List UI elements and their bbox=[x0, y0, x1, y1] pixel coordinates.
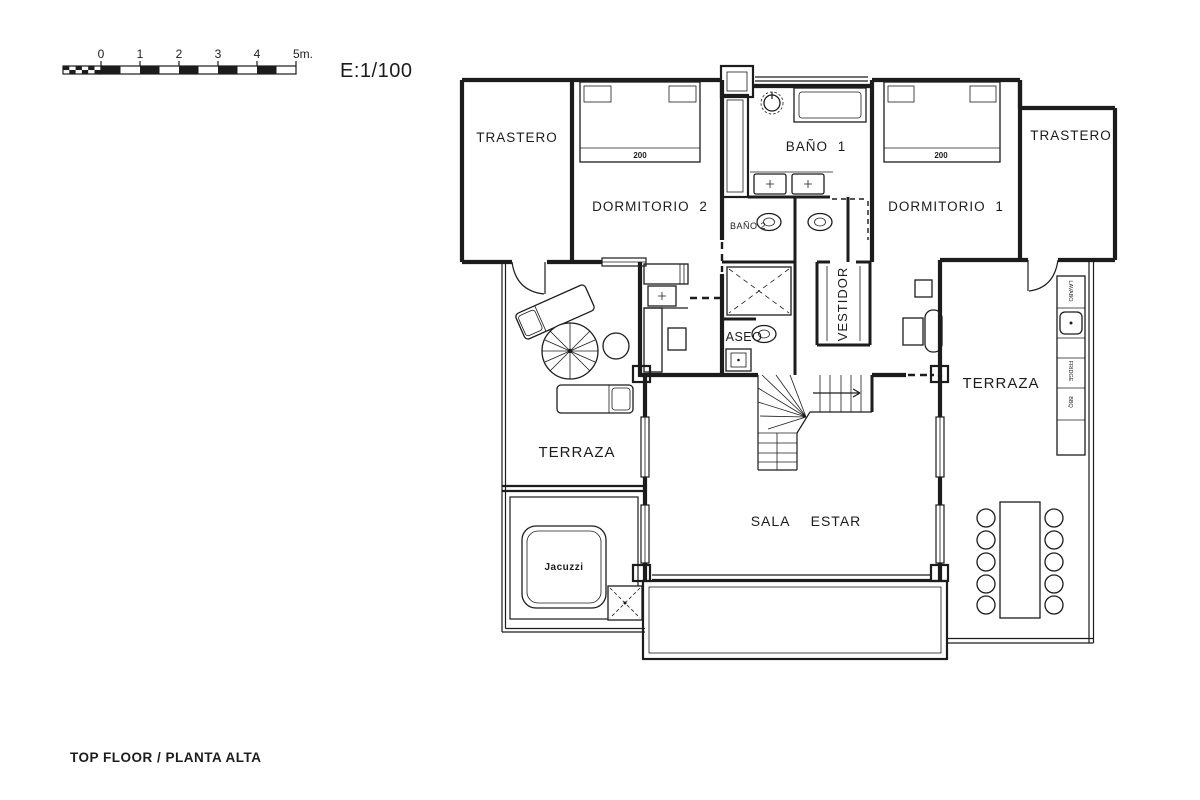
nightstand bbox=[915, 280, 932, 297]
dining-table bbox=[1000, 502, 1040, 618]
bed-dormitorio-2: 200 bbox=[580, 82, 700, 162]
room-label-aseo: ASEO bbox=[726, 330, 763, 344]
outdoor-shower bbox=[608, 586, 642, 620]
toilet-bano-1 bbox=[808, 214, 832, 231]
room-label-sala-estar: SALA ESTAR bbox=[751, 513, 862, 529]
room-label-vestidor: VESTIDOR bbox=[835, 267, 850, 341]
balcony bbox=[643, 581, 947, 659]
scale-tick-5m: 5m. bbox=[293, 47, 313, 61]
door-trastero-left bbox=[512, 262, 545, 294]
dining-set bbox=[977, 502, 1063, 618]
bed-dormitorio-1: 200 bbox=[884, 82, 1000, 162]
bathtub bbox=[794, 88, 866, 122]
water-heater bbox=[761, 92, 783, 114]
wall-posts bbox=[633, 366, 948, 581]
bed-2-size-label: 200 bbox=[633, 151, 647, 160]
sink-aseo bbox=[726, 349, 751, 371]
scale-tick-4: 4 bbox=[254, 47, 261, 61]
door-trastero-right bbox=[1028, 260, 1058, 291]
room-label-terraza-left: TERRAZA bbox=[538, 444, 615, 461]
window-sala-right-1 bbox=[936, 417, 944, 477]
room-label-trastero-right: TRASTERO bbox=[1030, 128, 1112, 143]
vanity-sinks bbox=[750, 172, 833, 194]
jacuzzi: Jacuzzi bbox=[522, 526, 606, 608]
window-bano-1-top bbox=[755, 77, 868, 81]
scale-tick-1: 1 bbox=[137, 47, 144, 61]
floor-title: TOP FLOOR / PLANTA ALTA bbox=[70, 750, 262, 765]
room-label-bano-2: BAÑO 2 bbox=[730, 221, 766, 231]
room-label-dormitorio-1: DORMITORIO 1 bbox=[888, 199, 1004, 214]
outdoor-kitchen: LAVABO FRIDGE BBQ bbox=[1057, 276, 1085, 455]
scale-ratio-label: E:1/100 bbox=[340, 60, 412, 82]
scale-bar: 0 1 2 3 4 5m. E:1/100 bbox=[63, 47, 412, 82]
outdoor-sink-label: LAVABO bbox=[1067, 280, 1073, 302]
scale-tick-3: 3 bbox=[215, 47, 222, 61]
shower-bano bbox=[727, 267, 791, 315]
bbq-label: BBQ bbox=[1067, 396, 1073, 408]
floor-plan-page: 0 1 2 3 4 5m. E:1/100 bbox=[0, 0, 1200, 800]
staircase-main bbox=[758, 375, 872, 470]
room-label-terraza-right: TERRAZA bbox=[962, 375, 1039, 392]
glazing-sala-bottom bbox=[652, 575, 931, 580]
spiral-staircase bbox=[542, 323, 598, 379]
chimney bbox=[721, 66, 753, 97]
bed-1-size-label: 200 bbox=[934, 151, 948, 160]
desk-dormitorio-1 bbox=[903, 280, 942, 352]
window-sala-left-1 bbox=[641, 417, 649, 477]
floor-plan-drawing: 0 1 2 3 4 5m. E:1/100 bbox=[0, 0, 1200, 800]
window-sala-left-2 bbox=[641, 505, 649, 563]
room-label-trastero-left: TRASTERO bbox=[476, 130, 558, 145]
scale-tick-0: 0 bbox=[98, 47, 105, 61]
window-sala-right-2 bbox=[936, 505, 944, 563]
fridge-label: FRIDGE bbox=[1067, 361, 1073, 382]
jacuzzi-label: Jacuzzi bbox=[544, 562, 583, 573]
room-label-dormitorio-2: DORMITORIO 2 bbox=[592, 199, 708, 214]
room-label-bano-1: BAÑO 1 bbox=[786, 139, 847, 154]
scale-tick-2: 2 bbox=[176, 47, 183, 61]
round-table bbox=[603, 333, 629, 359]
doors bbox=[512, 260, 1058, 294]
kitchenette bbox=[644, 264, 688, 372]
sun-lounger-2 bbox=[557, 385, 633, 413]
duct-shaft bbox=[722, 95, 748, 197]
